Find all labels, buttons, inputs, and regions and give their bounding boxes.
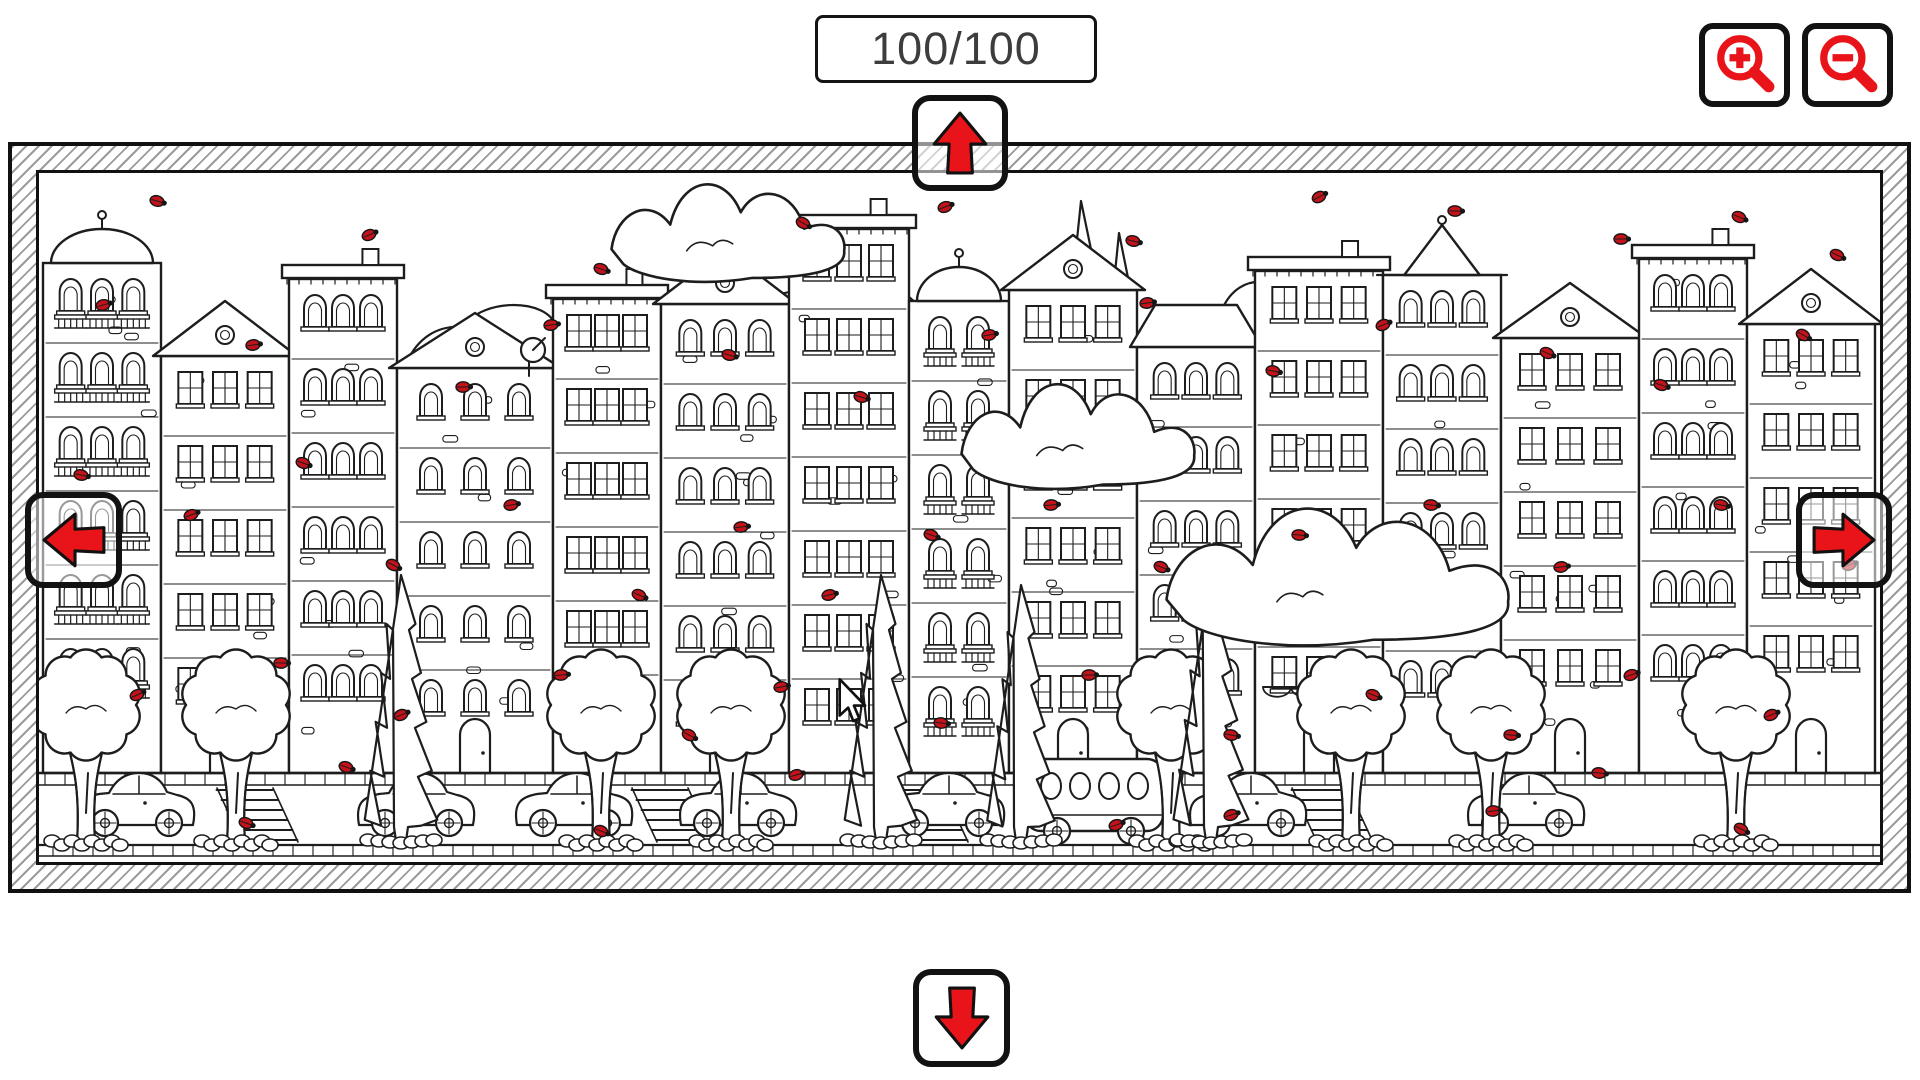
- arrow-down-icon: [929, 985, 995, 1051]
- arrow-left-icon: [41, 507, 107, 573]
- pan-left-button[interactable]: [25, 492, 122, 588]
- arrow-right-icon: [1811, 507, 1877, 573]
- found-counter: 100/100: [815, 15, 1097, 83]
- pan-right-button[interactable]: [1796, 492, 1892, 588]
- zoom-in-button[interactable]: [1699, 23, 1790, 107]
- magnifier-minus-icon: [1815, 32, 1881, 98]
- pan-down-button[interactable]: [913, 969, 1010, 1067]
- city-scene[interactable]: [39, 173, 1880, 862]
- zoom-out-button[interactable]: [1802, 23, 1893, 107]
- puzzle-frame: [8, 142, 1911, 893]
- game-stage: 100/100: [0, 0, 1920, 1080]
- arrow-up-icon: [927, 110, 993, 176]
- magnifier-plus-icon: [1712, 32, 1778, 98]
- pan-up-button[interactable]: [912, 95, 1008, 191]
- puzzle-canvas[interactable]: [36, 170, 1883, 865]
- found-counter-value: 100/100: [871, 23, 1041, 75]
